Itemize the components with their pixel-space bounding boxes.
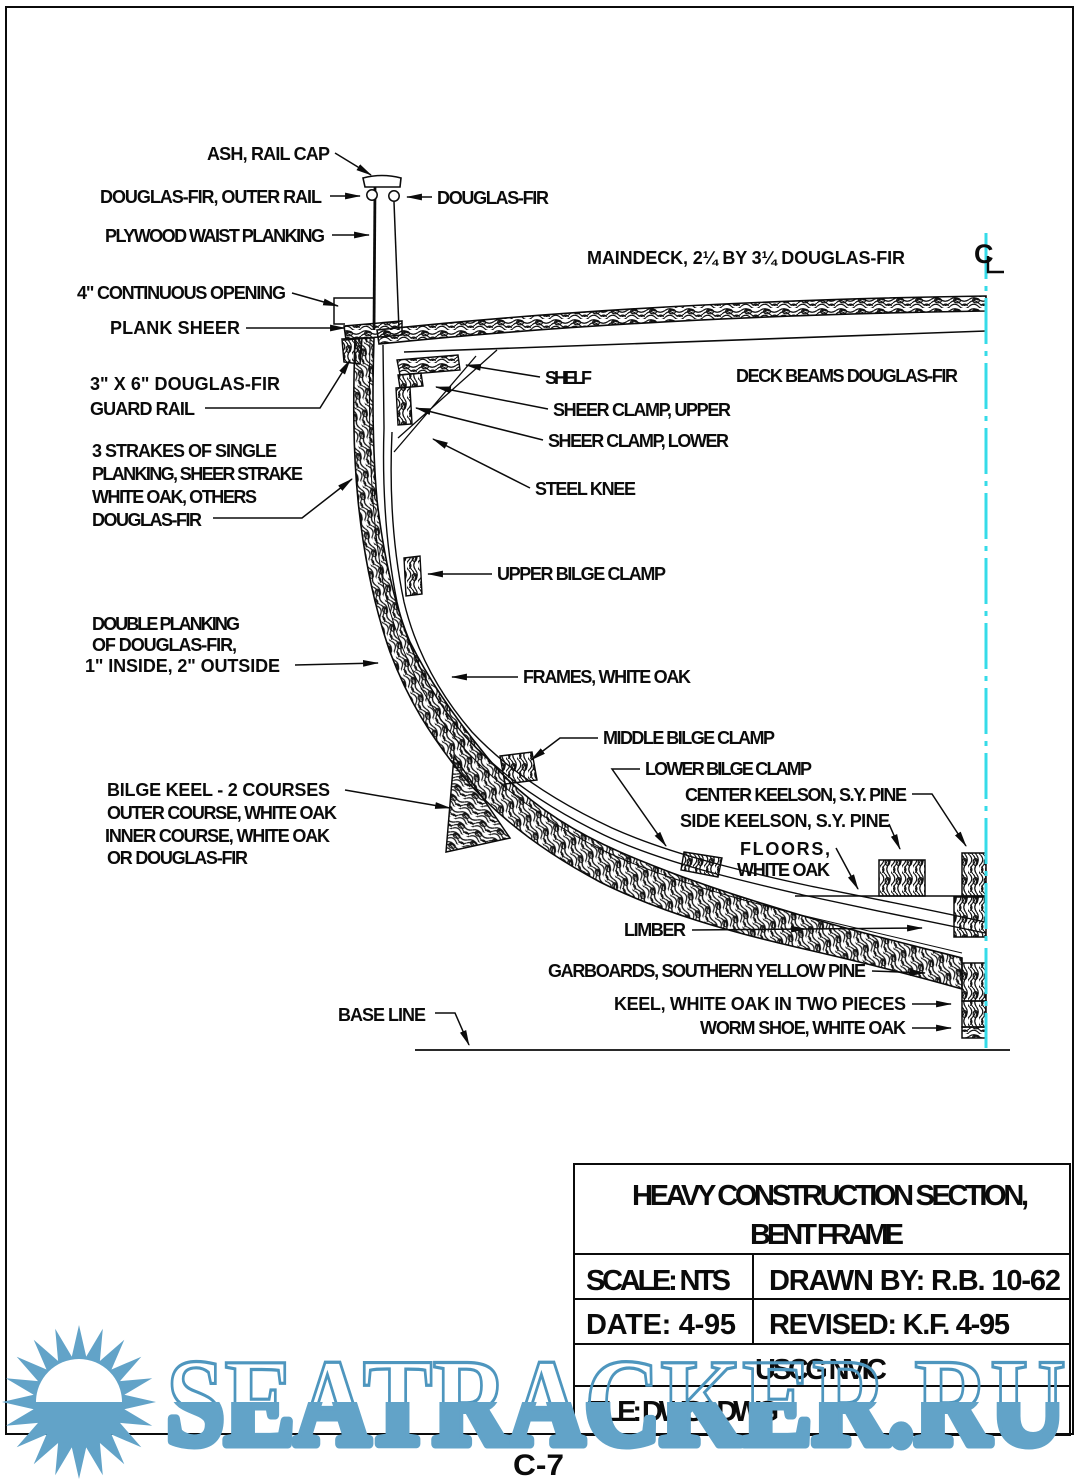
- svg-text:STEEL KNEE: STEEL KNEE: [535, 479, 636, 499]
- svg-text:WHITE OAK: WHITE OAK: [737, 860, 830, 880]
- svg-text:4" CONTINUOUS OPENING: 4" CONTINUOUS OPENING: [77, 283, 286, 303]
- svg-text:WORM SHOE, WHITE OAK: WORM SHOE, WHITE OAK: [700, 1018, 906, 1038]
- svg-text:OUTER COURSE, WHITE OAK: OUTER COURSE, WHITE OAK: [107, 803, 337, 823]
- svg-text:SHELF: SHELF: [545, 368, 592, 388]
- svg-text:OF DOUGLAS-FIR,: OF DOUGLAS-FIR,: [92, 635, 237, 655]
- svg-text:MAINDECK, 2¼ BY 3¼ DOUGLAS-FIR: MAINDECK, 2¼ BY 3¼ DOUGLAS-FIR: [587, 248, 905, 268]
- svg-text:DOUBLE PLANKING: DOUBLE PLANKING: [92, 614, 240, 634]
- svg-text:PLANK SHEER: PLANK SHEER: [110, 318, 240, 338]
- svg-text:LOWER BILGE CLAMP: LOWER BILGE CLAMP: [645, 759, 812, 779]
- svg-text:KEEL, WHITE OAK IN TWO PIECES: KEEL, WHITE OAK IN TWO PIECES: [614, 994, 906, 1014]
- svg-text:GUARD RAIL: GUARD RAIL: [90, 399, 195, 419]
- svg-text:MIDDLE BILGE CLAMP: MIDDLE BILGE CLAMP: [603, 728, 775, 748]
- svg-text:SCALE: NTS: SCALE: NTS: [586, 1265, 731, 1297]
- svg-text:WHITE OAK, OTHERS: WHITE OAK, OTHERS: [92, 487, 257, 507]
- svg-text:FLOORS,: FLOORS,: [740, 839, 830, 859]
- svg-text:DOUGLAS-FIR: DOUGLAS-FIR: [92, 510, 202, 530]
- svg-text:SHEER CLAMP, UPPER: SHEER CLAMP, UPPER: [553, 400, 731, 420]
- svg-text:C: C: [974, 239, 994, 269]
- svg-text:PLYWOOD WAIST PLANKING: PLYWOOD WAIST PLANKING: [105, 226, 325, 246]
- svg-text:1" INSIDE, 2" OUTSIDE: 1" INSIDE, 2" OUTSIDE: [85, 656, 280, 676]
- svg-text:INNER COURSE, WHITE OAK: INNER COURSE, WHITE OAK: [105, 826, 330, 846]
- svg-text:BASE LINE: BASE LINE: [338, 1005, 426, 1025]
- svg-text:BENT FRAME: BENT FRAME: [750, 1219, 904, 1251]
- svg-text:DOUGLAS-FIR, OUTER RAIL: DOUGLAS-FIR, OUTER RAIL: [100, 187, 322, 207]
- svg-text:SIDE KEELSON, S.Y. PINE: SIDE KEELSON, S.Y. PINE: [680, 811, 890, 831]
- svg-text:GARBOARDS, SOUTHERN YELLOW PIN: GARBOARDS, SOUTHERN YELLOW PINE: [548, 961, 866, 981]
- svg-text:DOUGLAS-FIR: DOUGLAS-FIR: [437, 188, 549, 208]
- svg-text:FRAMES, WHITE OAK: FRAMES, WHITE OAK: [523, 667, 691, 687]
- svg-text:DRAWN BY: R.B. 10-62: DRAWN BY: R.B. 10-62: [769, 1265, 1061, 1297]
- svg-text:LIMBER: LIMBER: [624, 920, 686, 940]
- svg-text:ASH, RAIL CAP: ASH, RAIL CAP: [207, 144, 330, 164]
- svg-text:PLANKING, SHEER STRAKE: PLANKING, SHEER STRAKE: [92, 464, 303, 484]
- svg-text:CENTER KEELSON, S.Y. PINE: CENTER KEELSON, S.Y. PINE: [685, 785, 907, 805]
- svg-text:SHEER CLAMP, LOWER: SHEER CLAMP, LOWER: [548, 431, 729, 451]
- svg-text:3" X 6" DOUGLAS-FIR: 3" X 6" DOUGLAS-FIR: [90, 374, 280, 394]
- svg-text:DECK BEAMS DOUGLAS-FIR: DECK BEAMS DOUGLAS-FIR: [736, 366, 958, 386]
- svg-text:OR DOUGLAS-FIR: OR DOUGLAS-FIR: [107, 848, 248, 868]
- svg-text:UPPER BILGE CLAMP: UPPER BILGE CLAMP: [497, 564, 666, 584]
- svg-text:3 STRAKES OF SINGLE: 3 STRAKES OF SINGLE: [92, 441, 277, 461]
- svg-text:HEAVY CONSTRUCTION SECTION,: HEAVY CONSTRUCTION SECTION,: [632, 1180, 1029, 1212]
- svg-text:BILGE KEEL - 2 COURSES: BILGE KEEL - 2 COURSES: [107, 780, 330, 800]
